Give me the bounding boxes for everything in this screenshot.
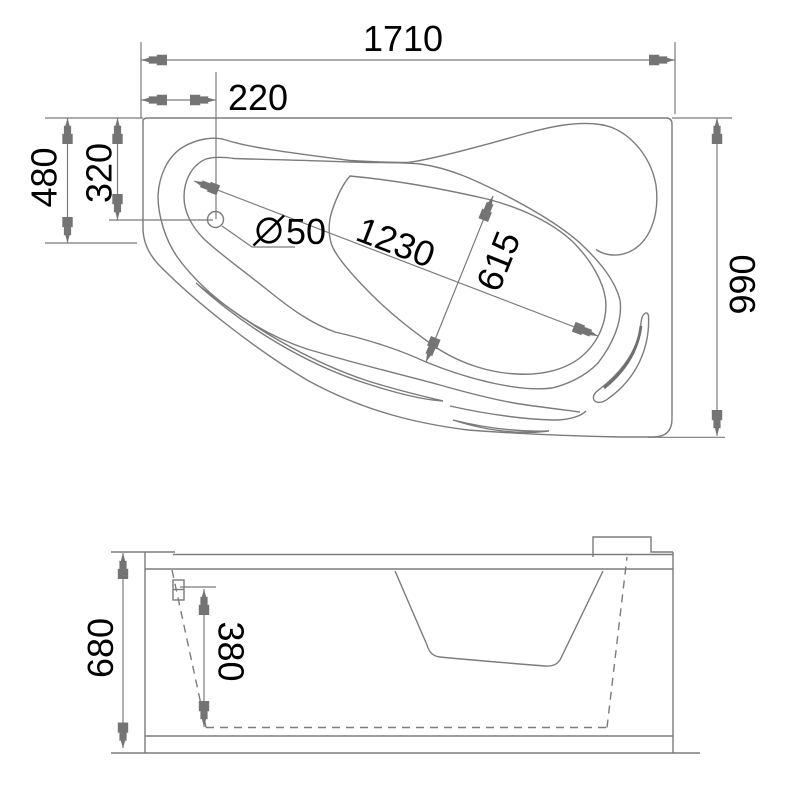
svg-text:380: 380 — [211, 621, 252, 681]
svg-text:50: 50 — [286, 211, 326, 252]
svg-text:1710: 1710 — [363, 18, 443, 59]
svg-text:990: 990 — [722, 254, 763, 314]
svg-text:480: 480 — [24, 147, 65, 207]
svg-text:680: 680 — [80, 618, 121, 678]
svg-text:320: 320 — [79, 143, 120, 203]
svg-text:220: 220 — [228, 77, 288, 118]
svg-text:1230: 1230 — [351, 209, 440, 276]
